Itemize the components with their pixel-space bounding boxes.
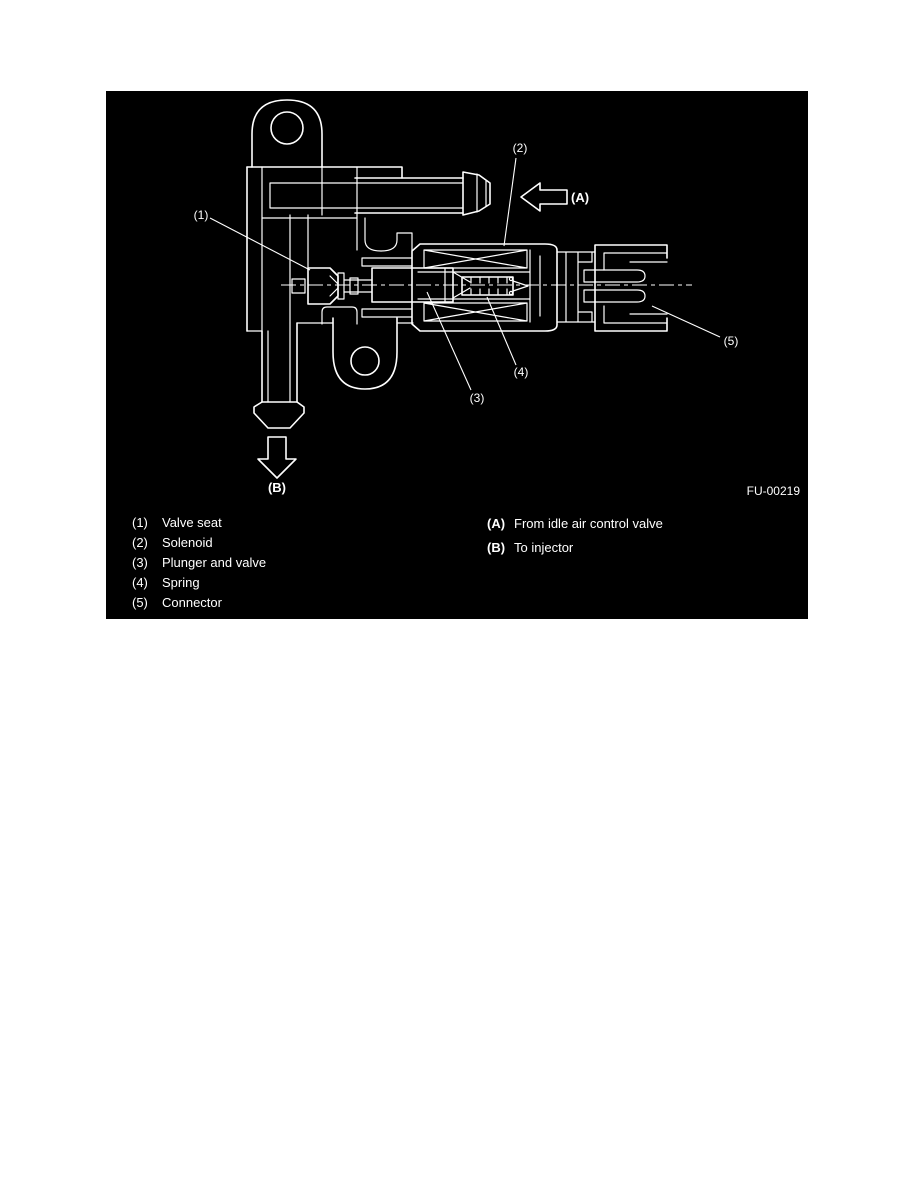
legend-label: From idle air control valve	[514, 512, 663, 536]
bracket-hook	[365, 218, 412, 251]
connector-pin-lower	[584, 290, 645, 302]
callout-2-label: (2)	[513, 141, 528, 155]
legend-item: (B) To injector	[487, 536, 663, 560]
legend-item: (A) From idle air control valve	[487, 512, 663, 536]
flow-arrow-inlet	[521, 183, 567, 211]
callout-3-leader	[427, 292, 471, 390]
callout-1-label: (1)	[194, 208, 209, 222]
callout-1-leader	[210, 218, 310, 270]
lower-mount-tab	[333, 318, 397, 389]
legend-parts: (1) Valve seat (2) Solenoid (3) Plunger …	[132, 513, 266, 613]
connector-pin-upper	[584, 270, 645, 282]
connector	[584, 245, 667, 331]
legend-item: (4) Spring	[132, 573, 266, 593]
callout-a-label: (A)	[571, 190, 589, 205]
legend-label: Connector	[162, 593, 222, 613]
manual-page: (1) (2) (3) (4) (5) (A) (B) FU-00219 (1)…	[0, 0, 918, 1188]
legend-label: To injector	[514, 536, 573, 560]
upper-mount-hole	[271, 112, 303, 144]
legend-label: Spring	[162, 573, 200, 593]
legend-marker: (4)	[132, 573, 162, 593]
valve-seat	[292, 268, 372, 304]
outlet-hose-nipple	[254, 323, 304, 428]
legend-label: Valve seat	[162, 513, 222, 533]
legend-marker: (2)	[132, 533, 162, 553]
inlet-hose-nipple	[270, 172, 490, 215]
spring	[462, 277, 528, 295]
callout-2-leader	[504, 158, 516, 246]
solenoid-coil-lower	[424, 303, 527, 321]
legend-item: (3) Plunger and valve	[132, 553, 266, 573]
flow-arrow-outlet	[258, 437, 296, 478]
legend-marker: (1)	[132, 513, 162, 533]
callout-3-label: (3)	[470, 391, 485, 405]
legend-marker: (B)	[487, 536, 514, 560]
legend-item: (2) Solenoid	[132, 533, 266, 553]
callout-5-label: (5)	[724, 334, 739, 348]
legend-item: (1) Valve seat	[132, 513, 266, 533]
legend-marker: (3)	[132, 553, 162, 573]
legend-marker: (A)	[487, 512, 514, 536]
figure-code: FU-00219	[747, 484, 801, 498]
legend-flow: (A) From idle air control valve (B) To i…	[487, 512, 663, 560]
callout-b-label: (B)	[268, 480, 286, 495]
solenoid-coil-upper	[424, 250, 527, 268]
callout-4-label: (4)	[514, 365, 529, 379]
upper-mount-tab	[252, 100, 322, 167]
legend-marker: (5)	[132, 593, 162, 613]
legend-label: Solenoid	[162, 533, 213, 553]
figure-panel: (1) (2) (3) (4) (5) (A) (B) FU-00219 (1)…	[106, 91, 808, 619]
lower-mount-hole	[351, 347, 379, 375]
legend-label: Plunger and valve	[162, 553, 266, 573]
callout-5-leader	[652, 306, 720, 337]
legend-item: (5) Connector	[132, 593, 266, 613]
